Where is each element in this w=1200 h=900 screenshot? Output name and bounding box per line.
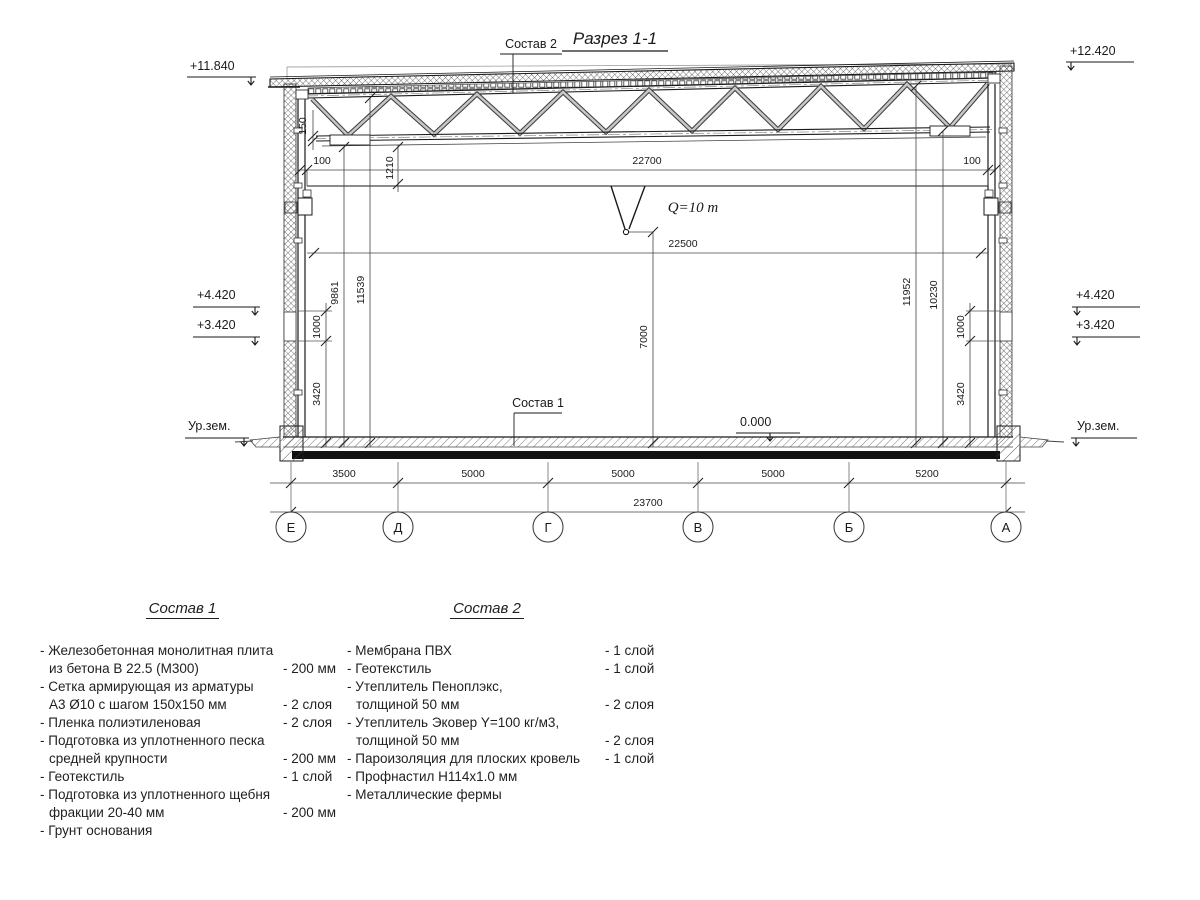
slab-hatch	[283, 437, 1013, 447]
ground-line-right	[1046, 441, 1064, 442]
dim-gap-right: 100	[963, 155, 981, 167]
list-item: - Геотекстиль - 1 слой	[347, 660, 665, 678]
right-wall	[984, 66, 1012, 437]
dim-span-2: 5000	[461, 468, 485, 480]
truss-left-seat	[330, 135, 370, 145]
crane-capacity-label: Q=10 m	[668, 200, 719, 216]
truss-right-seat	[930, 126, 970, 136]
elev-left-up: +4.420	[197, 288, 236, 302]
drawing-sheet: Разрез 1-1	[0, 0, 1200, 900]
axis-letter-e: Е	[287, 520, 296, 535]
dim-span-1: 3500	[332, 468, 356, 480]
sostav2-ref-label: Состав 2	[505, 37, 557, 51]
dim-right-band: 1000	[955, 315, 967, 339]
floor-slab	[235, 426, 1064, 461]
right-foundation	[997, 426, 1020, 461]
dim-left-outer-height: 11539	[355, 276, 367, 305]
right-ground-wedge	[1020, 437, 1048, 447]
axis-letter-a: А	[1002, 520, 1011, 535]
left-ground-wedge	[250, 437, 280, 447]
elev-right-low: +3.420	[1076, 318, 1115, 332]
elev-right-up: +4.420	[1076, 288, 1115, 302]
list-item: - Профнастил Н114х1.0 мм	[347, 768, 665, 786]
left-foundation	[280, 426, 303, 461]
list-item: - Геотекстиль - 1 слой	[40, 768, 342, 786]
list-item: - Металлические фермы	[347, 786, 665, 804]
dim-span-3: 5000	[611, 468, 635, 480]
right-crane-corbel	[984, 198, 998, 215]
sostav2-heading: Состав 2	[347, 600, 627, 618]
crane-runway: 100 22700 100 1210 150 Q=10 m 22500	[295, 110, 1000, 258]
elev-ground-left: Ур.зем.	[188, 419, 230, 433]
elev-top-right: +12.420	[1070, 44, 1116, 58]
drawing-title: Разрез 1-1	[562, 29, 668, 51]
dim-left-band: 1000	[311, 315, 323, 339]
left-wall	[284, 84, 312, 437]
dim-left-base: 3420	[311, 382, 323, 406]
axis-dimensions: 3500 5000 5000 5000 5200 23700 Е Д Г В Б…	[270, 462, 1025, 542]
elev-left-low: +3.420	[197, 318, 236, 332]
dim-right-inner-height: 10230	[928, 280, 940, 309]
left-crane-corbel	[298, 198, 312, 215]
list-item: - Грунт основания	[40, 822, 342, 840]
sostav1-heading: Состав 1	[40, 600, 325, 618]
axis-letter-d: Д	[394, 520, 403, 535]
dim-total: 23700	[633, 497, 662, 509]
axis-letter-g: Г	[544, 520, 551, 535]
list-item: - Пленка полиэтиленовая - 2 слоя	[40, 714, 342, 732]
dim-hook-height: 7000	[638, 325, 650, 349]
floor-level-label: 0.000	[740, 415, 771, 429]
list-item: - Подготовка из уплотненного щебняфракци…	[40, 786, 342, 822]
dim-chord-height: 150	[297, 117, 309, 135]
dim-beam-depth: 1210	[384, 156, 396, 180]
left-wall-panels	[284, 84, 296, 437]
leaders: Состав 2 Состав 1 0.000	[500, 37, 800, 446]
dim-left-inner-height: 9861	[329, 281, 341, 305]
dim-right-outer-height: 11952	[901, 278, 913, 307]
list-item: - Подготовка из уплотненного пескасредне…	[40, 732, 342, 768]
list-item: - Железобетонная монолитная плитаиз бето…	[40, 642, 342, 678]
crane-hook	[611, 186, 645, 229]
foundation-strip	[292, 451, 1000, 459]
list-item: - Пароизоляция для плоских кровель - 1 с…	[347, 750, 665, 768]
list-item: - Утеплитель Пеноплэкс,толщиной 50 мм - …	[347, 678, 665, 714]
axis-letter-b: Б	[845, 520, 854, 535]
section-title: Разрез 1-1	[573, 29, 657, 48]
dim-rail-span: 22700	[632, 155, 661, 167]
sostav2-list: Состав 2 - Мембрана ПВХ - 1 слой - Геоте…	[347, 600, 665, 804]
list-item: - Мембрана ПВХ - 1 слой	[347, 642, 665, 660]
dim-span-4: 5000	[761, 468, 785, 480]
list-item: - Утеплитель Эковер Y=100 кг/м3,толщиной…	[347, 714, 665, 750]
sostav1-list: Состав 1 - Железобетонная монолитная пли…	[40, 600, 342, 840]
section-drawing-canvas: Разрез 1-1	[0, 0, 1200, 580]
elev-top-left: +11.840	[190, 59, 235, 73]
dim-right-base: 3420	[955, 382, 967, 406]
axis-letter-v: В	[694, 520, 703, 535]
truss-bottom-plate	[322, 137, 986, 146]
axis-bubbles: Е Д Г В Б А	[276, 512, 1021, 542]
dim-gap-left: 100	[313, 155, 331, 167]
dim-span-5: 5200	[915, 468, 939, 480]
elev-ground-right: Ур.зем.	[1077, 419, 1119, 433]
dim-crane-span: 22500	[668, 238, 697, 250]
left-wall-band	[284, 312, 296, 341]
right-wall-panels	[1000, 66, 1012, 437]
right-wall-band	[1000, 312, 1012, 341]
sostav1-ref-label: Состав 1	[512, 396, 564, 410]
list-item: - Сетка армирующая из арматурыА3 Ø10 с ш…	[40, 678, 342, 714]
